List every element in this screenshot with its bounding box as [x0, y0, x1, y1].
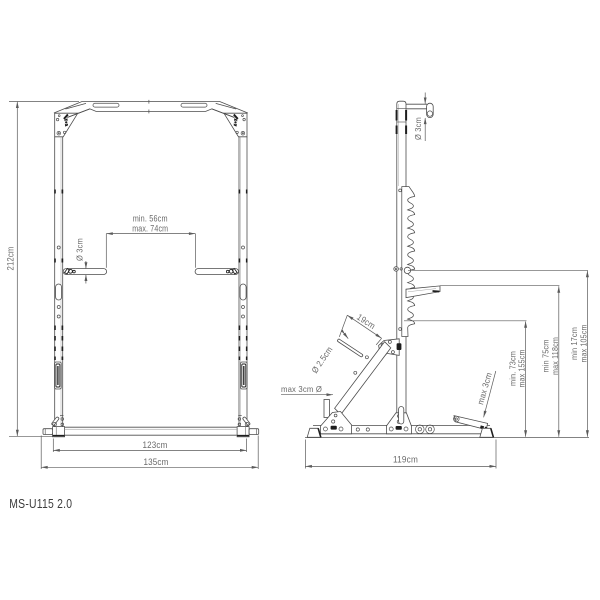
svg-text:212cm: 212cm — [6, 247, 16, 271]
svg-text:max. 74cm: max. 74cm — [132, 224, 168, 234]
svg-text:min. 56cm: min. 56cm — [133, 214, 168, 224]
svg-text:Ø 3cm: Ø 3cm — [74, 238, 84, 261]
svg-text:max 105cm: max 105cm — [579, 325, 589, 363]
svg-text:Ø 2.5cm: Ø 2.5cm — [309, 345, 334, 375]
svg-text:119cm: 119cm — [393, 454, 418, 464]
svg-text:max 155cm: max 155cm — [517, 350, 527, 388]
svg-text:MS-U115 2.0: MS-U115 2.0 — [9, 496, 72, 511]
svg-text:max 118cm: max 118cm — [550, 337, 560, 375]
svg-text:max 3cm Ø: max 3cm Ø — [281, 384, 322, 394]
svg-text:Ø 3cm: Ø 3cm — [413, 117, 423, 140]
svg-text:123cm: 123cm — [143, 440, 168, 450]
svg-text:135cm: 135cm — [144, 457, 169, 467]
